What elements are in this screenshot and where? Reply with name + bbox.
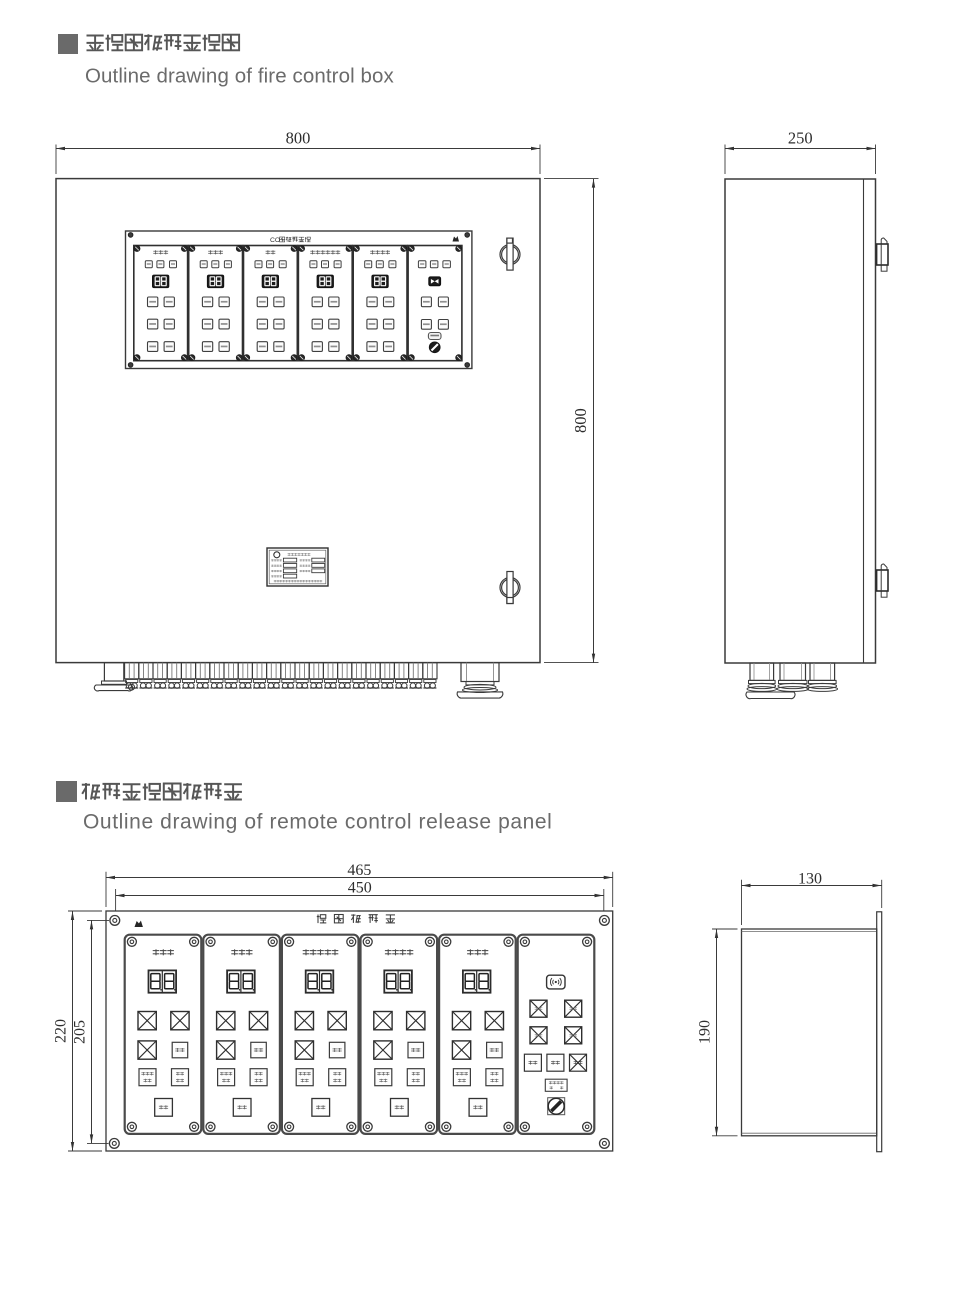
svg-text:CO: CO <box>270 237 280 244</box>
svg-text:800: 800 <box>571 408 590 433</box>
svg-text:800: 800 <box>286 129 311 148</box>
svg-text:250: 250 <box>788 129 813 148</box>
svg-text:220: 220 <box>53 1019 70 1043</box>
svg-text:Outline drawing of remote cont: Outline drawing of remote control releas… <box>83 811 552 834</box>
svg-text:190: 190 <box>697 1020 714 1044</box>
svg-text:Outline drawing of fire contro: Outline drawing of fire control box <box>85 65 395 88</box>
svg-text:130: 130 <box>798 870 822 887</box>
svg-text:205: 205 <box>72 1020 89 1044</box>
svg-text:465: 465 <box>347 862 371 879</box>
svg-text:450: 450 <box>348 879 372 896</box>
